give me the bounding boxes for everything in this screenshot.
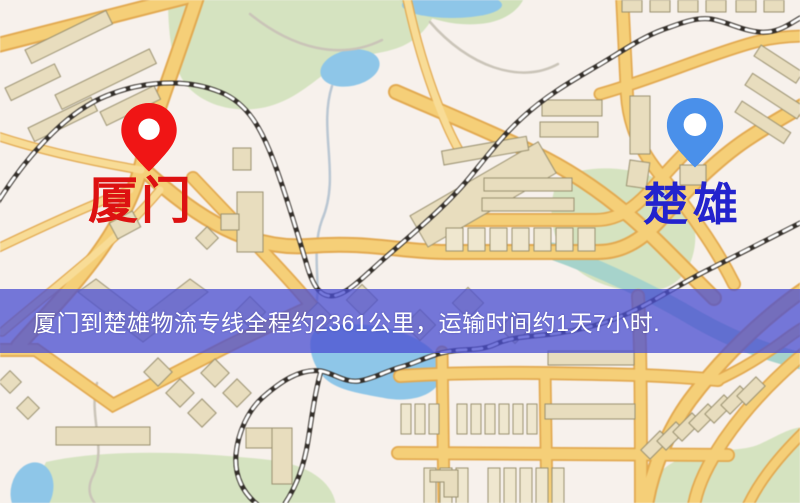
destination-pin-hole [684, 113, 707, 136]
route-info-text: 厦门到楚雄物流专线全程约2361公里，运输时间约1天7小时. [33, 304, 660, 338]
origin-marker [118, 102, 180, 172]
destination-place-label: 楚雄 [643, 182, 743, 227]
map-image: 厦门 楚雄 厦门到楚雄物流专线全程约2361公里，运输时间约1天7小时. [0, 0, 800, 503]
origin-place-label: 厦门 [88, 176, 194, 226]
origin-pin-icon [118, 102, 180, 172]
destination-pin-icon [665, 97, 725, 168]
map-background [0, 0, 800, 503]
origin-pin-hole [138, 119, 159, 140]
destination-marker [665, 97, 725, 168]
route-info-banner: 厦门到楚雄物流专线全程约2361公里，运输时间约1天7小时. [0, 289, 800, 353]
